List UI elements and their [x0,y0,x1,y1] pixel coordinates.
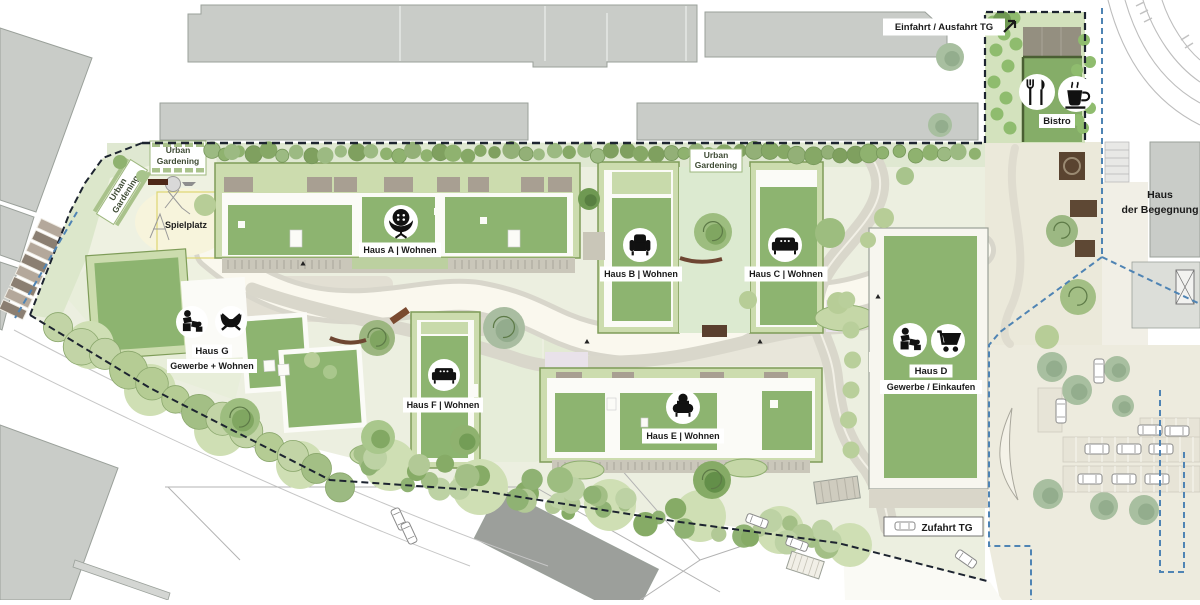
svg-text:Zufahrt TG: Zufahrt TG [921,523,972,534]
svg-text:Haus: Haus [1147,189,1173,201]
svg-text:Haus B | Wohnen: Haus B | Wohnen [604,269,678,279]
svg-text:Urban: Urban [166,145,191,155]
svg-text:Gardening: Gardening [695,160,738,170]
svg-text:Urban: Urban [704,150,729,160]
svg-text:Haus F | Wohnen: Haus F | Wohnen [407,400,480,410]
svg-text:Gardening: Gardening [157,156,200,166]
svg-text:Bistro: Bistro [1043,116,1071,127]
svg-text:Haus G: Haus G [195,346,228,357]
svg-text:Gewerbe + Wohnen: Gewerbe + Wohnen [170,361,254,371]
svg-text:Gewerbe / Einkaufen: Gewerbe / Einkaufen [887,382,976,392]
svg-text:Haus C | Wohnen: Haus C | Wohnen [749,269,823,279]
svg-text:Haus E | Wohnen: Haus E | Wohnen [646,431,719,441]
svg-text:der Begegnung: der Begegnung [1121,204,1198,216]
svg-text:Spielplatz: Spielplatz [165,220,208,230]
svg-text:Einfahrt / Ausfahrt TG: Einfahrt / Ausfahrt TG [895,22,993,33]
svg-text:Haus D: Haus D [915,366,948,377]
svg-text:Haus A | Wohnen: Haus A | Wohnen [363,245,436,255]
